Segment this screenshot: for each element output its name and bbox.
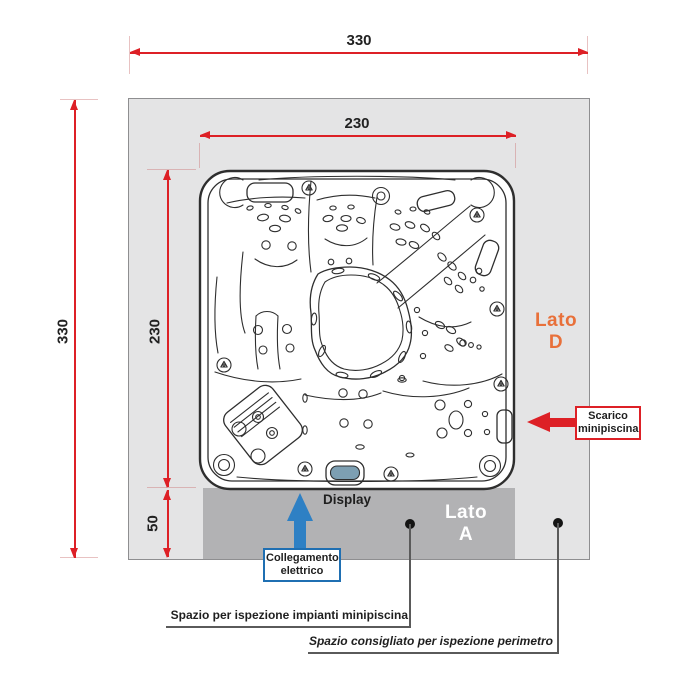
dim-arrow bbox=[200, 131, 210, 139]
dim-arrow bbox=[163, 548, 171, 558]
drain-left-arrow-icon bbox=[527, 412, 550, 432]
dim-tub-width-label: 230 bbox=[327, 115, 387, 132]
dim-arrow bbox=[130, 48, 140, 56]
electrical-callout-box: Collegamento elettrico bbox=[263, 548, 341, 582]
dim-arrow bbox=[163, 170, 171, 180]
dim-arrow bbox=[506, 131, 516, 139]
display-label: Display bbox=[318, 492, 376, 507]
dim-arrow bbox=[70, 548, 78, 558]
extension-line bbox=[199, 143, 200, 168]
extension-line bbox=[147, 487, 196, 488]
dim-arrow bbox=[578, 48, 588, 56]
side-d-label: Lato D bbox=[516, 310, 596, 354]
inspection-note: Spazio per ispezione impianti minipiscin… bbox=[108, 608, 408, 622]
leader-line bbox=[409, 524, 411, 628]
extension-line bbox=[515, 143, 516, 168]
minipool-top-view-drawing bbox=[197, 167, 517, 493]
dim-tub-height-line bbox=[167, 170, 169, 487]
dim-arrow bbox=[163, 490, 171, 500]
drain-arrow-shaft bbox=[548, 418, 577, 427]
dim-arrow bbox=[163, 478, 171, 488]
extension-line bbox=[60, 557, 98, 558]
dim-overall-height-label: 330 bbox=[55, 307, 72, 357]
perimeter-note: Spazio consigliato per ispezione perimet… bbox=[253, 634, 553, 648]
leader-line bbox=[557, 523, 559, 654]
note-underline bbox=[166, 626, 411, 628]
extension-line bbox=[60, 99, 98, 100]
installation-diagram: 330 230 330 230 50 Lato D Lato A Scarico… bbox=[0, 0, 700, 700]
dim-arrow bbox=[70, 100, 78, 110]
extension-line bbox=[147, 169, 196, 170]
dim-service-depth-line bbox=[167, 490, 169, 557]
electrical-up-arrow-icon bbox=[287, 493, 313, 521]
note-underline bbox=[308, 652, 559, 654]
dim-overall-width-line bbox=[130, 52, 588, 54]
dim-tub-height-label: 230 bbox=[147, 307, 164, 357]
dim-overall-height-line bbox=[74, 100, 76, 558]
dim-tub-width-line bbox=[200, 135, 516, 137]
electrical-arrow-shaft bbox=[294, 519, 306, 549]
dim-service-depth-label: 50 bbox=[145, 499, 162, 549]
dim-overall-width-label: 330 bbox=[329, 32, 389, 49]
drain-callout-box: Scarico minipiscina bbox=[575, 406, 641, 440]
side-a-label: Lato A bbox=[426, 502, 506, 546]
